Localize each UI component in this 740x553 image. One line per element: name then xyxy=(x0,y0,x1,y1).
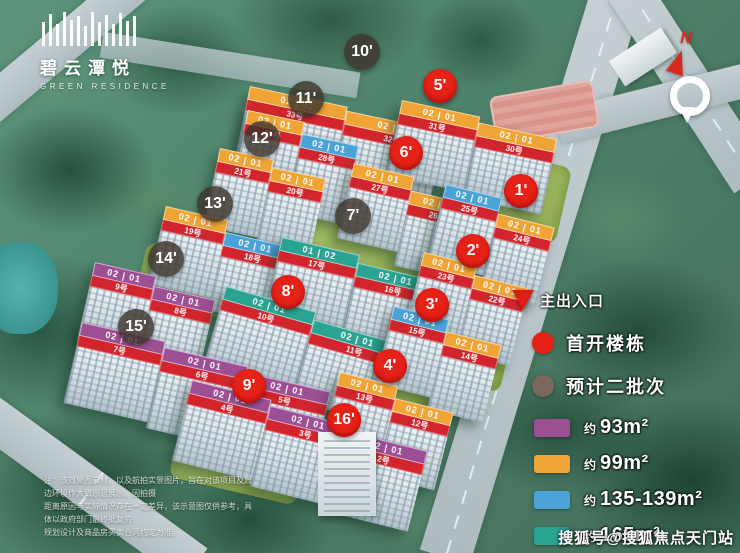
main-entrance-callout: 主出入口 xyxy=(512,290,604,311)
legend-phase-row: 首开楼栋 xyxy=(532,330,702,356)
plot-marker-16: 16' xyxy=(327,403,361,437)
plot-marker-12: 12' xyxy=(244,121,280,157)
legend-area-row: 约135-139m² xyxy=(534,488,702,511)
plot-marker-3: 3' xyxy=(415,288,449,322)
plot-marker-11: 11' xyxy=(288,81,324,117)
disclaimer-line: 注：该效果图素材、以及航拍实景图片，旨在对该项目及周边环境作大致示意展示，因拍摄 xyxy=(44,474,259,500)
disclaimer-text: 注：该效果图素材、以及航拍实景图片，旨在对该项目及周边环境作大致示意展示，因拍摄… xyxy=(44,474,259,539)
area-prefix: 约 xyxy=(584,492,596,509)
second-batch-dot-icon xyxy=(532,375,554,397)
project-logo: 碧云潭悦 GREEN RESIDENCE xyxy=(40,8,190,91)
area-color-swatch xyxy=(534,491,570,509)
compass: N xyxy=(648,30,708,116)
disclaimer-line: 距离原因与实际情况存在一定差异，该示意图仅供参考，具体以政府部门最终批复的 xyxy=(44,500,259,526)
legend-area-row: 约93m² xyxy=(534,416,702,439)
legend-phase-row: 预计二批次 xyxy=(532,373,702,399)
plot-marker-4: 4' xyxy=(373,349,407,383)
plot-marker-13: 13' xyxy=(197,186,233,222)
plot-marker-1: 1' xyxy=(504,174,538,208)
legend: 首开楼栋预计二批次 约93m²约99m²约135-139m²约165m² xyxy=(532,330,702,553)
legend-phase-label: 首开楼栋 xyxy=(566,330,646,356)
project-name: 碧云潭悦 xyxy=(40,54,190,79)
plot-marker-6: 6' xyxy=(389,136,423,170)
plot-marker-10: 10' xyxy=(344,34,380,70)
area-color-swatch xyxy=(534,419,570,437)
tower-16-building xyxy=(318,432,376,516)
legend-phase-label: 预计二批次 xyxy=(566,373,666,399)
entrance-arrow-icon xyxy=(512,290,534,310)
legend-area-row: 约99m² xyxy=(534,452,702,475)
compass-north-label: N xyxy=(656,30,716,48)
aerial-site-plan: 02 | 0133号02 | 0132号02 | 0131号02 | 0130号… xyxy=(0,0,740,553)
project-subtitle: GREEN RESIDENCE xyxy=(40,82,190,91)
plot-marker-14: 14' xyxy=(148,241,184,277)
plot-marker-2: 2' xyxy=(456,234,490,268)
location-pin-icon xyxy=(670,76,710,116)
first-batch-dot-icon xyxy=(532,332,554,354)
plot-marker-15: 15' xyxy=(118,309,154,345)
logo-bars-icon xyxy=(42,8,190,46)
plot-marker-7: 7' xyxy=(335,198,371,234)
disclaimer-line: 规划设计及商品房买卖合同约定为准。 xyxy=(44,526,259,539)
pond xyxy=(0,242,58,334)
plot-marker-9: 9' xyxy=(232,369,266,403)
compass-arrow-icon xyxy=(666,48,691,76)
area-size-value: 93m² xyxy=(600,416,649,439)
area-color-swatch xyxy=(534,455,570,473)
area-prefix: 约 xyxy=(584,456,596,473)
area-prefix: 约 xyxy=(584,420,596,437)
area-size-value: 99m² xyxy=(600,452,649,475)
watermark: 搜狐号@搜狐焦点天门站 xyxy=(558,527,734,548)
area-size-value: 135-139m² xyxy=(600,488,702,511)
entrance-label: 主出入口 xyxy=(540,290,604,311)
plot-marker-8: 8' xyxy=(271,275,305,309)
plot-marker-5: 5' xyxy=(423,69,457,103)
